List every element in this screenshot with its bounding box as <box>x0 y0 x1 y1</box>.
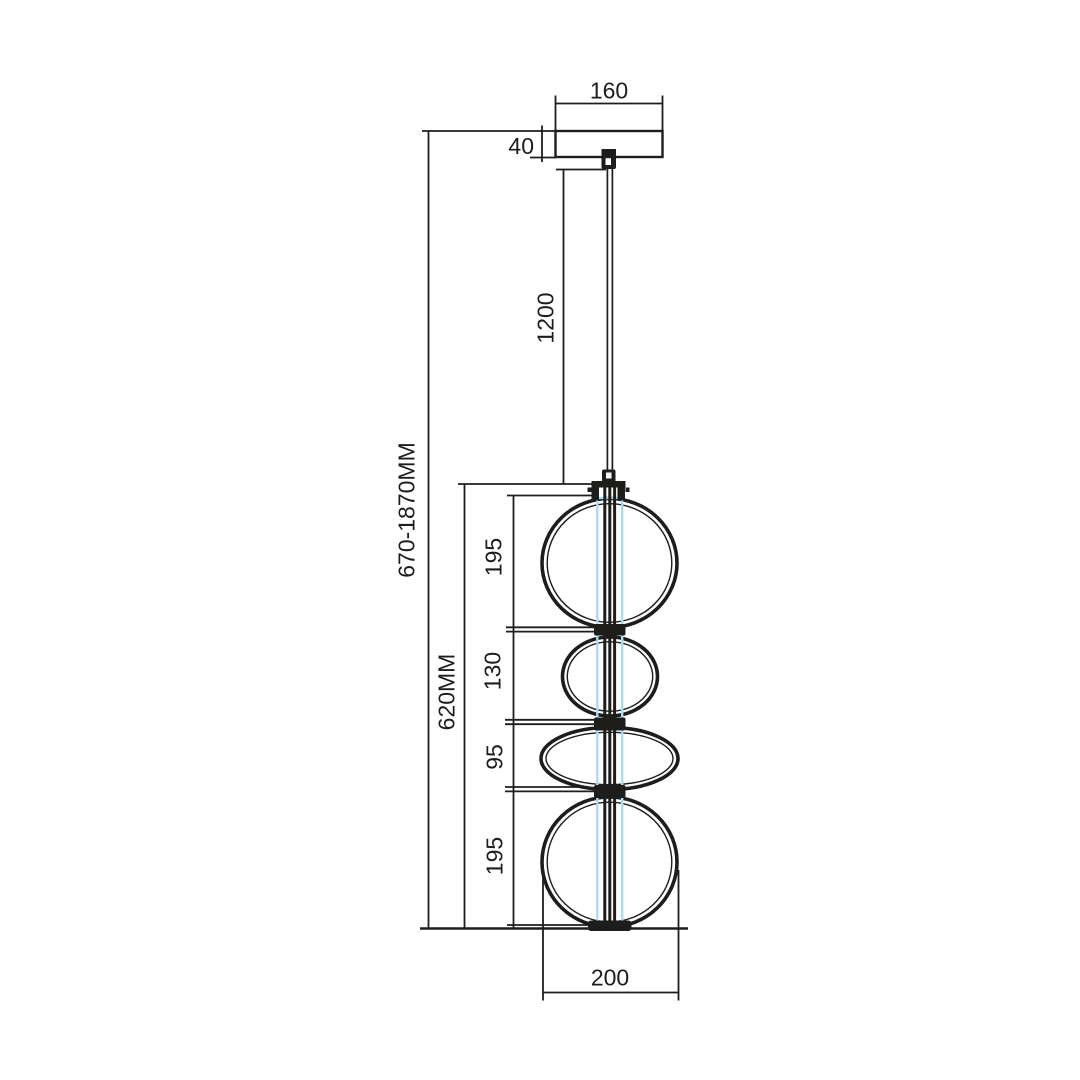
internal-cord <box>605 483 615 921</box>
label-bubble1-height: 195 <box>483 538 506 576</box>
holder-right-leg <box>618 487 626 501</box>
top-fitting-notch <box>606 473 612 479</box>
canopy-fitting-notch <box>606 158 612 165</box>
holder-top-bar <box>592 481 626 488</box>
dimension-drawing-canvas: 160 40 1200 670-1870MM 620MM 195 130 95 … <box>0 0 1080 1080</box>
suspension-cable <box>607 160 612 483</box>
label-canopy-height: 40 <box>492 135 534 158</box>
joint-band-2 <box>594 718 626 731</box>
canopy-fitting-head <box>602 149 617 158</box>
label-cable-length: 1200 <box>535 292 558 343</box>
holder-left-nub <box>588 488 592 493</box>
bottom-cap <box>588 921 632 932</box>
label-canopy-width: 160 <box>590 80 628 103</box>
joint-band-1 <box>594 624 626 636</box>
holder-left-leg <box>592 487 600 501</box>
label-bubble2-height: 130 <box>482 652 505 690</box>
label-overall-height: 670-1870MM <box>396 442 419 578</box>
ceiling-canopy <box>556 131 663 158</box>
label-fixture-height: 620MM <box>436 654 459 731</box>
fixture-baseline <box>420 925 688 929</box>
joint-band-3 <box>594 785 626 798</box>
label-bubble4-height: 195 <box>484 837 507 875</box>
label-bubble3-height: 95 <box>484 744 507 770</box>
pendant-lamp-line-art <box>0 0 1080 1080</box>
label-shade-diameter: 200 <box>591 967 629 990</box>
holder-right-nub <box>626 488 630 493</box>
